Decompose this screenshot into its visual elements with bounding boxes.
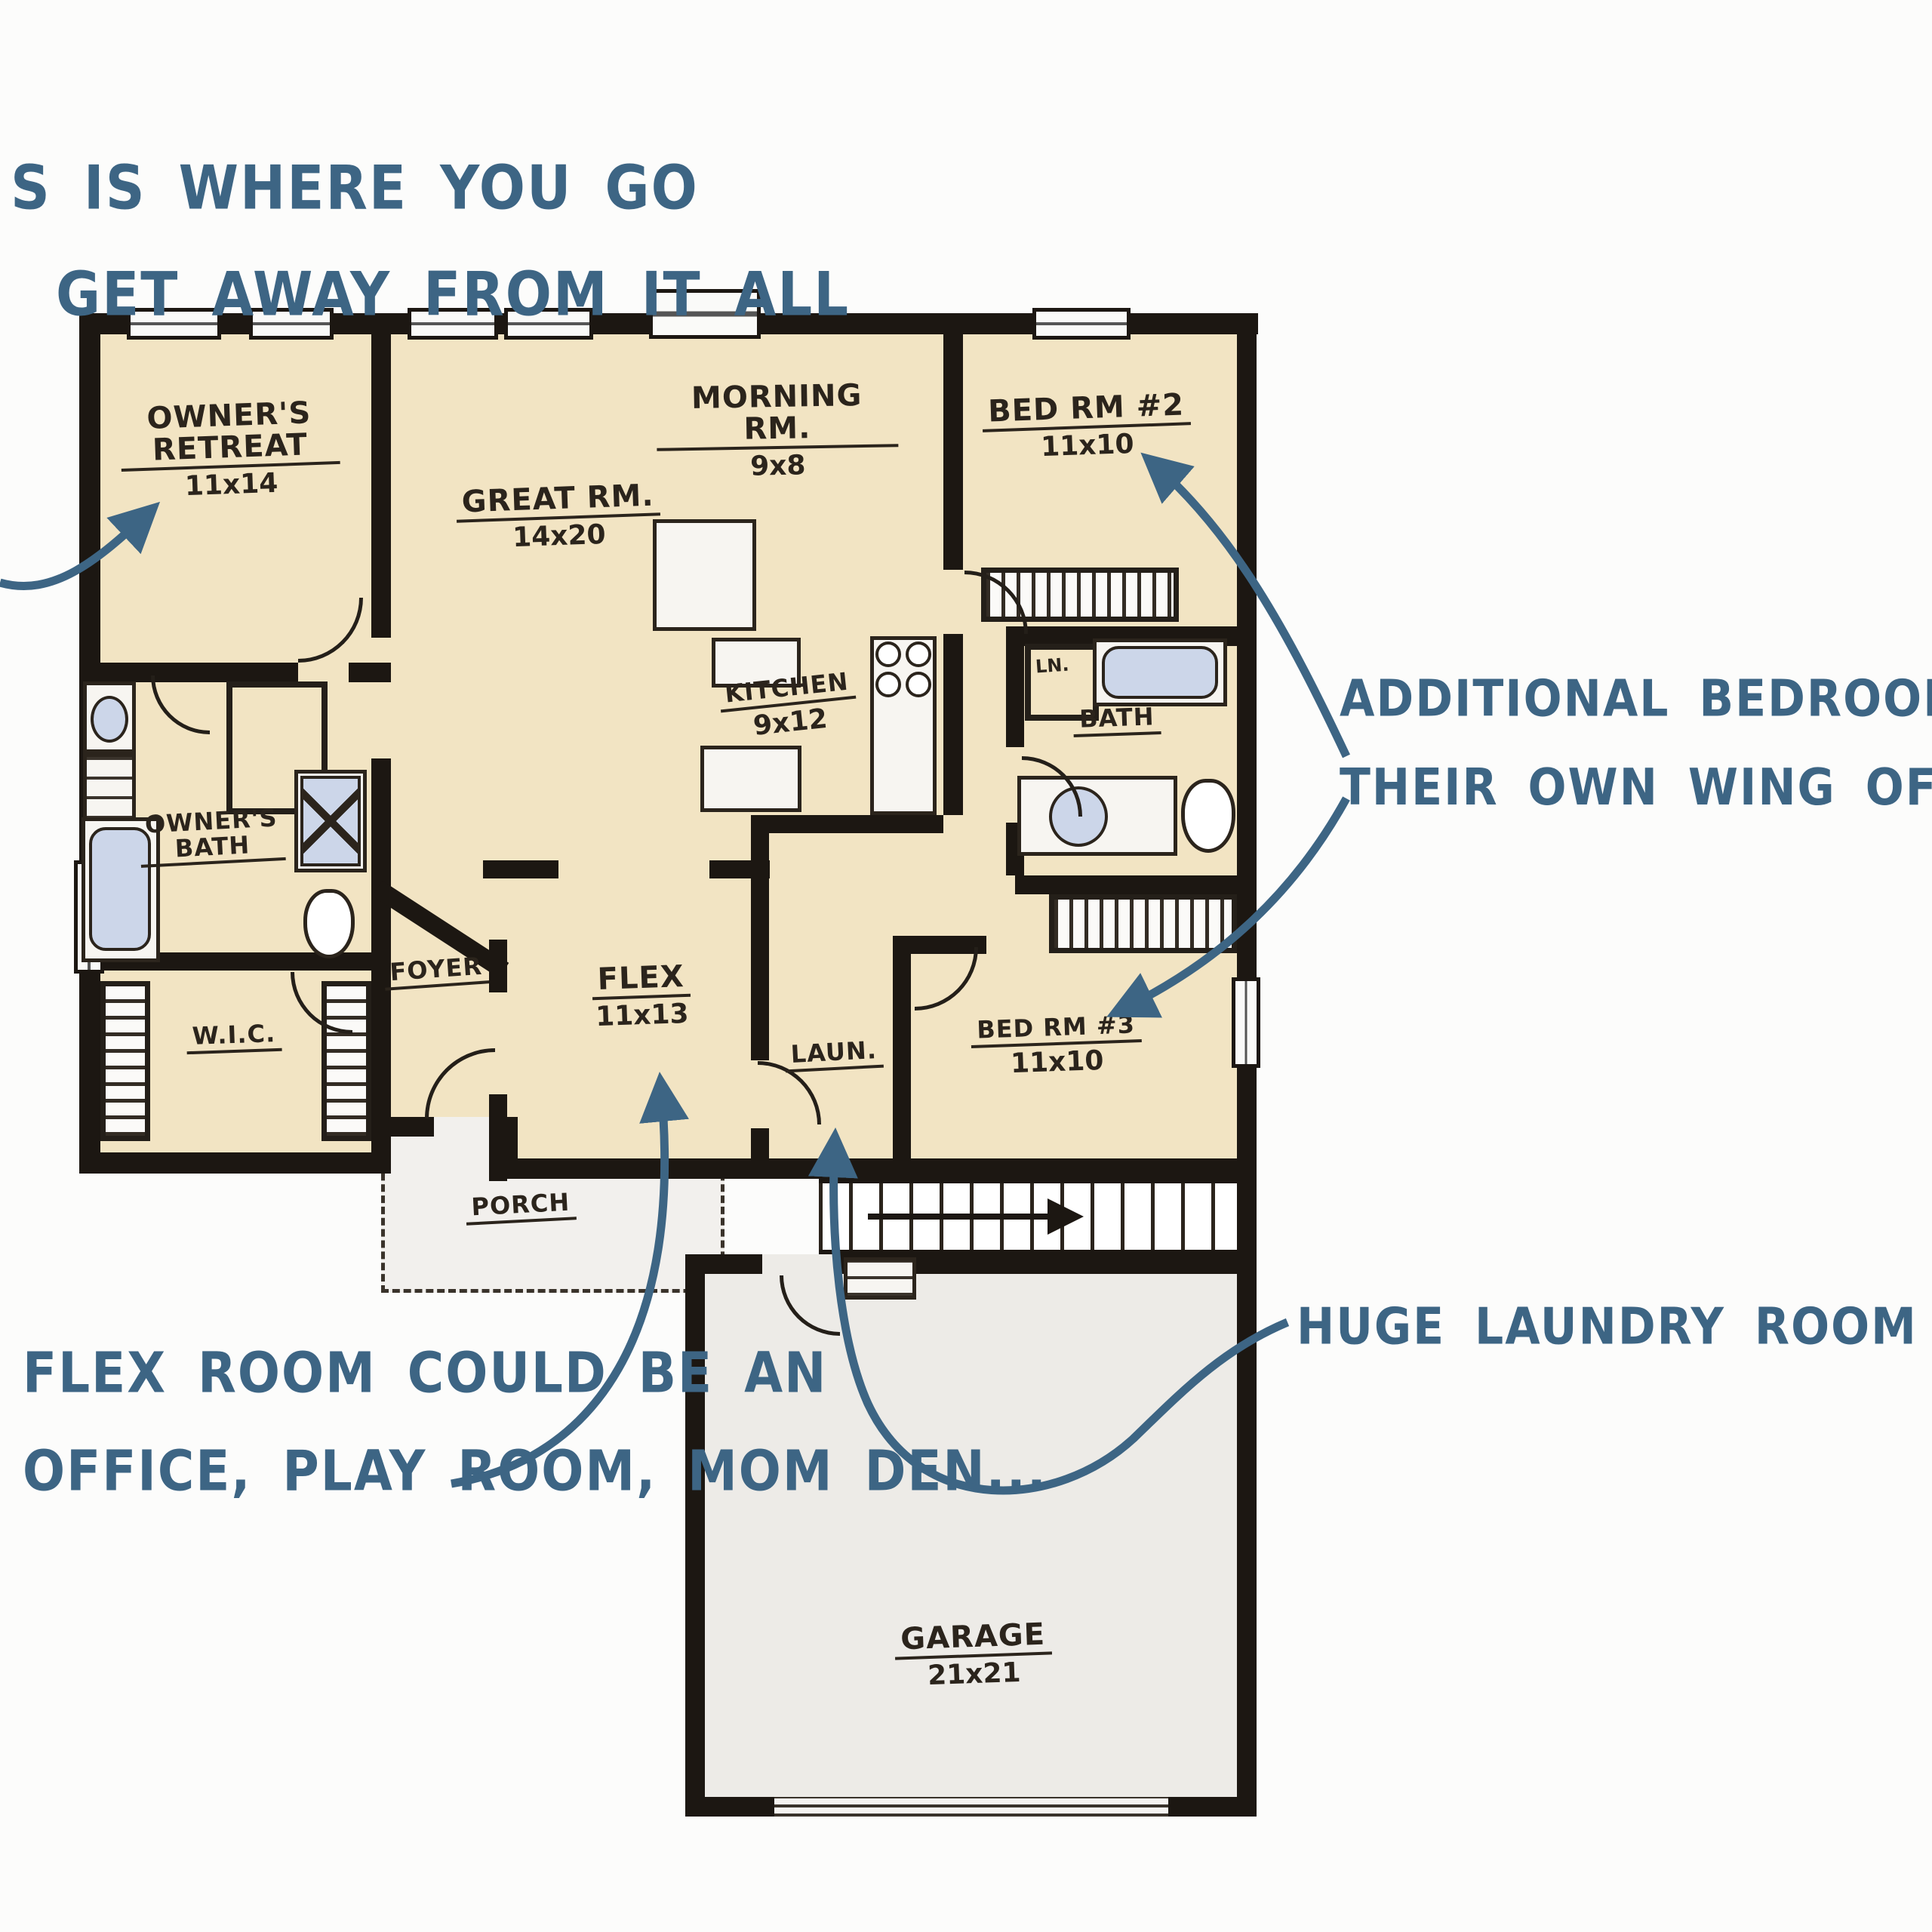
- owners-toilet: [303, 889, 355, 958]
- wall-laun-bed3: [893, 936, 911, 1160]
- garage-entry-steps: [844, 1257, 916, 1300]
- room-name: W.I.C.: [186, 1021, 282, 1054]
- label-bed-rm-3: BED RM #3 11x10: [958, 1011, 1156, 1081]
- label-bath: BATH: [1056, 703, 1177, 737]
- window-bed3: [1232, 977, 1260, 1068]
- bed3-closet: [1049, 894, 1237, 953]
- label-owners-bath: OWNER'S BATH: [138, 805, 285, 868]
- garage-door: [774, 1797, 1168, 1817]
- wall-garage-bottom-a: [685, 1797, 774, 1817]
- room-name: BED RM #2: [982, 389, 1191, 432]
- room-dim: 9x8: [657, 448, 899, 484]
- wall-garage-bottom-b: [1168, 1797, 1257, 1817]
- wall-owners-bottom: [79, 1152, 390, 1174]
- annotation-line: THEIR OWN WING OF THE HOU: [1340, 758, 1932, 817]
- owners-sink: [91, 696, 128, 743]
- label-owners-retreat: OWNER'S RETREAT 11x14: [119, 396, 341, 504]
- label-linen: LN.: [1035, 654, 1069, 677]
- room-name: OWNER'S RETREAT: [119, 396, 340, 472]
- annotation-line: GET AWAY FROM IT ALL: [56, 259, 850, 330]
- annotation-line: HUGE LAUNDRY ROOM: [1297, 1297, 1918, 1356]
- annotation-retreat: S IS WHERE YOU GO GET AWAY FROM IT ALL: [11, 134, 850, 347]
- wall-laun-left-a: [751, 815, 769, 1060]
- annotation-line: ADDITIONAL BEDROOMS HAVE: [1340, 669, 1932, 728]
- wall-retreat-bath-b: [349, 663, 391, 682]
- bath-tub: [1102, 646, 1218, 699]
- wall-flex-top-b: [709, 860, 770, 878]
- wall-bath2-bottom: [1015, 875, 1237, 894]
- wic-shelf-left: [100, 981, 150, 1141]
- owners-shower: [300, 776, 361, 866]
- room-name: GREAT RM.: [455, 479, 660, 522]
- room-name: LAUN.: [784, 1038, 884, 1072]
- room-name: OWNER'S BATH: [138, 805, 285, 868]
- room-dim: 11x13: [566, 998, 718, 1034]
- room-name: GARAGE: [894, 1618, 1052, 1660]
- annotation-line: S IS WHERE YOU GO: [11, 152, 699, 223]
- label-bed-rm-2: BED RM #2 11x10: [980, 389, 1193, 465]
- annotation-line: OFFICE, PLAY ROOM, MOM DEN...: [23, 1438, 1048, 1503]
- wall-laun-left-b: [751, 1128, 769, 1160]
- wall-bed3-bottom: [819, 1158, 1237, 1179]
- window-bed2: [1032, 308, 1131, 340]
- room-name: MORNING RM.: [656, 379, 899, 451]
- wall-retreat-great-upper: [371, 313, 391, 638]
- wall-flex-bottom: [498, 1158, 819, 1179]
- burner-2: [906, 641, 931, 667]
- wall-bedwing-left-mid: [943, 634, 963, 815]
- label-garage: GARAGE 21x21: [860, 1617, 1088, 1694]
- kitchen-island-2: [700, 746, 801, 812]
- wall-bedwing-left-upper: [943, 313, 963, 570]
- wall-kitchen-hall: [769, 815, 943, 833]
- bath-toilet: [1181, 779, 1235, 853]
- room-name: BATH: [1073, 704, 1161, 737]
- room-name: PORCH: [465, 1189, 577, 1225]
- label-wic: W.I.C.: [173, 1020, 294, 1054]
- wall-garage-right: [1237, 1200, 1257, 1817]
- label-morning-rm: MORNING RM. 9x8: [656, 379, 899, 484]
- annotation-bedrooms: ADDITIONAL BEDROOMS HAVE THEIR OWN WING …: [1340, 655, 1932, 832]
- wall-flex-top-a: [483, 860, 558, 878]
- label-laun: LAUN.: [773, 1037, 895, 1073]
- annotation-line: FLEX ROOM COULD BE AN: [23, 1340, 827, 1405]
- burner-1: [875, 641, 901, 667]
- burner-4: [906, 672, 931, 697]
- annotation-laundry: HUGE LAUNDRY ROOM: [1297, 1283, 1918, 1372]
- wall-hall-bath2-a: [1006, 626, 1024, 747]
- label-flex: FLEX 11x13: [565, 960, 718, 1034]
- owners-vanity-cabinet: [83, 753, 136, 823]
- stairwell: [819, 1179, 1237, 1254]
- floor-plan-sheet: OWNER'S RETREAT 11x14 GREAT RM. 14x20 MO…: [0, 0, 1932, 1932]
- room-name: BED RM #3: [971, 1012, 1142, 1048]
- wall-garage-top-a: [685, 1254, 762, 1274]
- room-name: FLEX: [591, 961, 691, 1001]
- annotation-flex: FLEX ROOM COULD BE AN OFFICE, PLAY ROOM,…: [23, 1324, 1048, 1520]
- burner-3: [875, 672, 901, 697]
- label-great-rm: GREAT RM. 14x20: [445, 479, 673, 555]
